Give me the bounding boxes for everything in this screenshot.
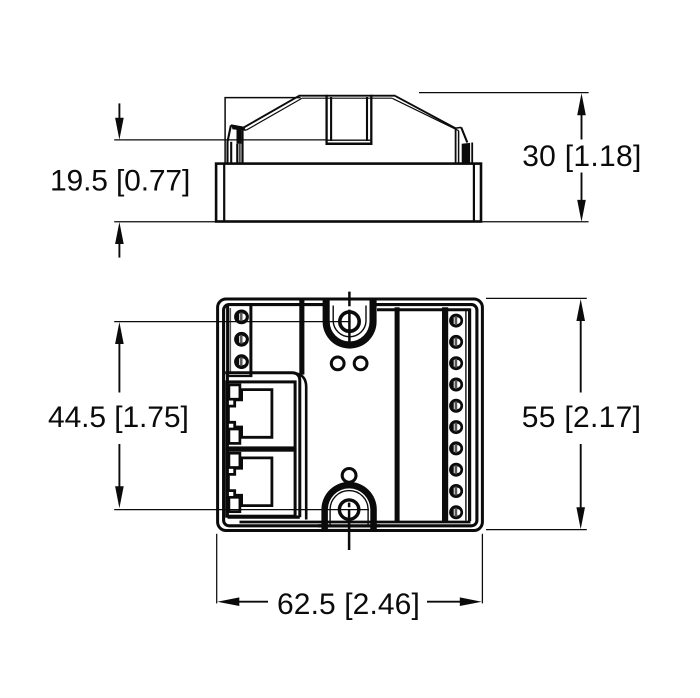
svg-text:44.5 [1.75]: 44.5 [1.75]	[48, 401, 189, 434]
svg-text:19.5 [0.77]: 19.5 [0.77]	[50, 165, 190, 198]
svg-text:62.5 [2.46]: 62.5 [2.46]	[277, 588, 420, 621]
svg-text:55 [2.17]: 55 [2.17]	[522, 401, 641, 434]
svg-text:30 [1.18]: 30 [1.18]	[522, 140, 641, 173]
